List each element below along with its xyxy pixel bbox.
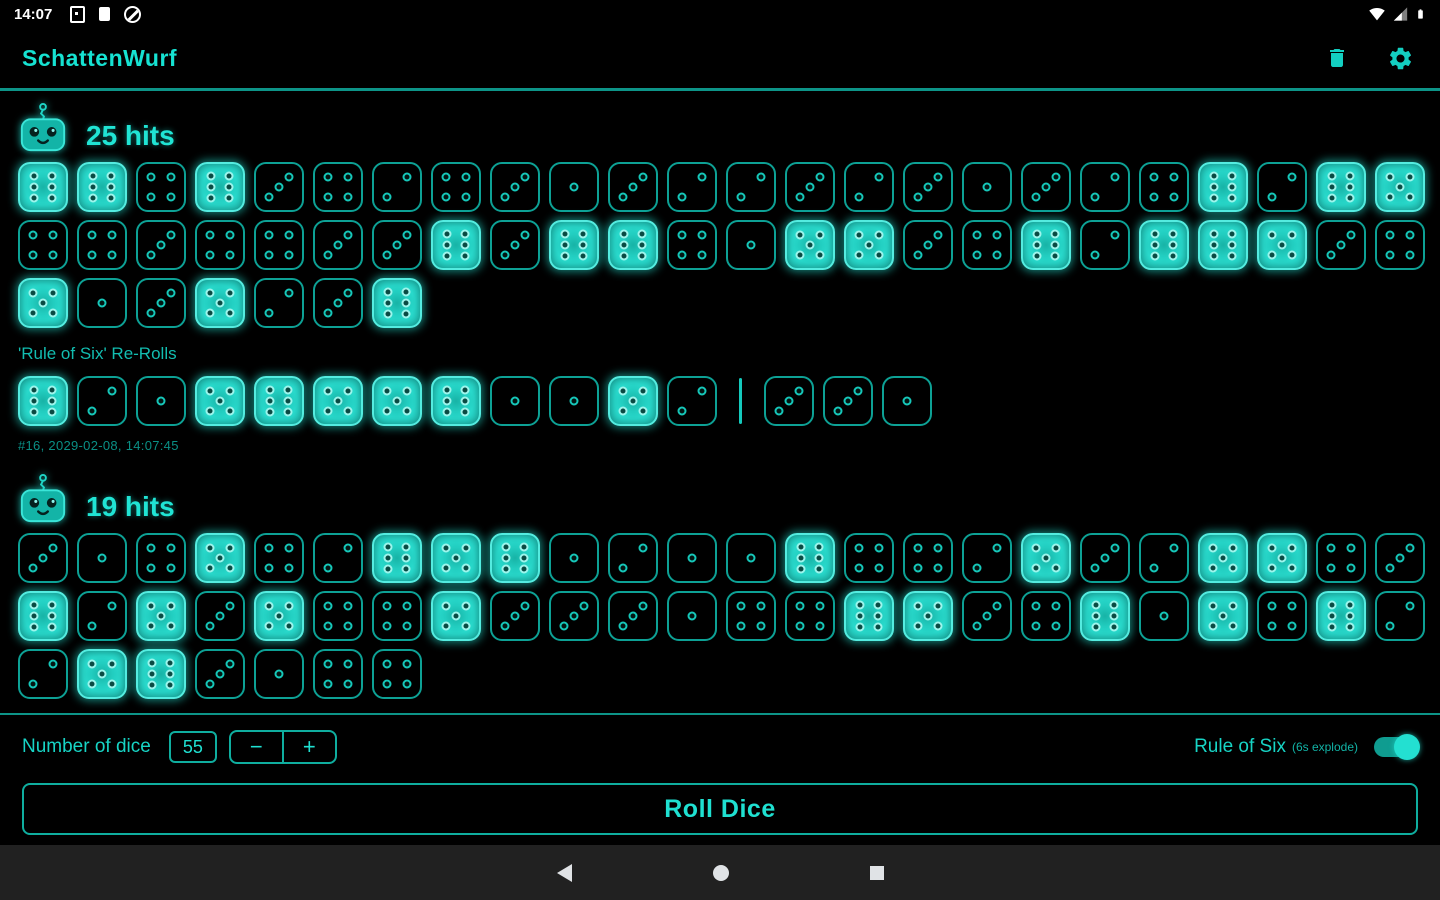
die-5-hit — [1198, 591, 1248, 641]
settings-button[interactable] — [1383, 41, 1418, 76]
pip — [39, 299, 48, 308]
pip — [146, 251, 155, 260]
pip — [403, 622, 412, 631]
die-3 — [195, 591, 245, 641]
pip — [285, 622, 294, 631]
reroll-dice-row — [18, 376, 1440, 426]
pip — [1052, 543, 1061, 552]
pip — [924, 612, 933, 621]
pip — [384, 287, 393, 296]
pip — [1328, 194, 1337, 203]
pip — [106, 194, 115, 203]
die-3 — [490, 591, 540, 641]
pip — [403, 172, 412, 181]
reroll-label: 'Rule of Six' Re-Rolls — [18, 344, 1440, 364]
decrease-dice-button[interactable]: − — [229, 730, 284, 764]
die-6-hit — [136, 649, 186, 699]
pip — [1111, 230, 1120, 239]
pip — [323, 622, 332, 631]
die-4 — [372, 591, 422, 641]
pip — [637, 241, 646, 250]
die-4 — [136, 533, 186, 583]
die-5-hit — [903, 591, 953, 641]
roll-dice-button[interactable]: Roll Dice — [22, 783, 1418, 835]
pip — [511, 612, 520, 621]
delete-button[interactable] — [1321, 41, 1353, 75]
pip — [384, 310, 393, 319]
pip — [441, 564, 450, 573]
pip — [757, 172, 766, 181]
pip — [401, 542, 410, 551]
pip — [167, 288, 176, 297]
pip — [344, 230, 353, 239]
pip — [393, 241, 402, 250]
die-5-hit — [1198, 533, 1248, 583]
pip — [618, 407, 627, 416]
battery-icon — [1415, 5, 1426, 23]
app-bar: SchattenWurf — [0, 28, 1440, 91]
pip — [216, 397, 225, 406]
pip — [559, 622, 568, 631]
pip — [264, 230, 273, 239]
die-3 — [136, 278, 186, 328]
die-3 — [1080, 533, 1130, 583]
die-2 — [1375, 591, 1425, 641]
pip — [403, 659, 412, 668]
pip — [382, 601, 391, 610]
pip — [384, 542, 393, 551]
pip — [1227, 194, 1236, 203]
pip — [1288, 622, 1297, 631]
die-6-hit — [431, 220, 481, 270]
dice-row — [18, 162, 1440, 212]
pip — [814, 565, 823, 574]
cell-signal-icon — [1392, 6, 1409, 22]
pip — [677, 407, 686, 416]
pip — [913, 251, 922, 260]
pip — [207, 183, 216, 192]
pip — [98, 554, 107, 563]
pip — [167, 543, 176, 552]
pip — [1170, 543, 1179, 552]
pip — [1031, 622, 1040, 631]
die-3 — [254, 162, 304, 212]
home-button[interactable] — [705, 857, 737, 889]
clock: 14:07 — [14, 6, 52, 23]
pip — [1385, 622, 1394, 631]
pip — [1033, 252, 1042, 261]
die-3 — [490, 162, 540, 212]
pip — [1406, 601, 1415, 610]
pip — [323, 564, 332, 573]
die-2 — [667, 376, 717, 426]
die-2 — [313, 533, 363, 583]
die-6-hit — [372, 533, 422, 583]
pip — [146, 543, 155, 552]
pip — [1229, 601, 1238, 610]
robot-icon — [18, 473, 68, 525]
pip — [157, 397, 166, 406]
pip — [87, 251, 96, 260]
pip — [275, 612, 284, 621]
pip — [216, 554, 225, 563]
pip — [401, 299, 410, 308]
rolls-list[interactable]: 25 hits'Rule of Six' Re-Rolls#16, 2029-0… — [0, 94, 1440, 713]
die-4 — [844, 533, 894, 583]
pip — [49, 251, 58, 260]
pip — [1168, 241, 1177, 250]
pip — [1168, 229, 1177, 238]
pip — [443, 241, 452, 250]
dice-row — [18, 649, 1440, 699]
pip — [148, 658, 157, 667]
pip — [1227, 183, 1236, 192]
pip — [334, 397, 343, 406]
pip — [1385, 193, 1394, 202]
pip — [283, 385, 292, 394]
rule-of-six-toggle[interactable] — [1374, 737, 1418, 757]
wifi-icon — [1368, 6, 1386, 22]
pip — [795, 230, 804, 239]
pip — [1109, 600, 1118, 609]
pip — [266, 385, 275, 394]
pip — [87, 680, 96, 689]
pip — [1328, 623, 1337, 632]
home-icon — [713, 865, 729, 881]
die-1 — [136, 376, 186, 426]
pip — [344, 601, 353, 610]
pip — [403, 680, 412, 689]
pip — [285, 251, 294, 260]
pip — [854, 193, 863, 202]
pip — [1229, 543, 1238, 552]
pip — [462, 172, 471, 181]
pip — [89, 171, 98, 180]
pip — [502, 565, 511, 574]
pip — [108, 680, 117, 689]
pip — [519, 565, 528, 574]
pip — [698, 172, 707, 181]
pip — [561, 241, 570, 250]
reroll-separator — [739, 378, 742, 424]
pip — [462, 622, 471, 631]
schattenwurf-app: 14:07 SchattenWurf — [0, 0, 1440, 900]
pip — [993, 601, 1002, 610]
pip — [629, 397, 638, 406]
die-5-hit — [195, 376, 245, 426]
pip — [1149, 172, 1158, 181]
pip — [1267, 543, 1276, 552]
pip — [285, 172, 294, 181]
die-3 — [1316, 220, 1366, 270]
pip — [384, 554, 393, 563]
pip — [323, 172, 332, 181]
pip — [511, 241, 520, 250]
pip — [521, 601, 530, 610]
die-3 — [608, 162, 658, 212]
pip — [47, 612, 56, 621]
die-6-hit — [549, 220, 599, 270]
pip — [747, 554, 756, 563]
pip — [205, 680, 214, 689]
bottom-panel: Number of dice − + Rule of Six (6s explo… — [0, 713, 1440, 845]
pip — [146, 193, 155, 202]
pip — [108, 659, 117, 668]
pip — [205, 251, 214, 260]
pip — [205, 386, 214, 395]
pip — [873, 623, 882, 632]
pip — [344, 288, 353, 297]
pip — [393, 397, 402, 406]
pip — [1288, 564, 1297, 573]
die-2 — [726, 162, 776, 212]
pip — [30, 408, 39, 417]
pip — [1326, 251, 1335, 260]
notification-square-icon — [70, 6, 85, 23]
pip — [913, 564, 922, 573]
pip — [264, 564, 273, 573]
pip — [578, 241, 587, 250]
pip — [639, 386, 648, 395]
pip — [873, 600, 882, 609]
pip — [462, 193, 471, 202]
pip — [688, 554, 697, 563]
pip — [1267, 564, 1276, 573]
pip — [167, 193, 176, 202]
die-4 — [431, 162, 481, 212]
pip — [30, 612, 39, 621]
pip — [382, 659, 391, 668]
pip — [511, 183, 520, 192]
pip — [797, 554, 806, 563]
die-4 — [136, 162, 186, 212]
die-2 — [1080, 162, 1130, 212]
pip — [500, 622, 509, 631]
rule-of-six-sublabel: (6s explode) — [1292, 740, 1358, 754]
pip — [1031, 193, 1040, 202]
increase-dice-button[interactable]: + — [282, 730, 337, 764]
pip — [1210, 194, 1219, 203]
dice-row — [18, 220, 1440, 270]
pip — [47, 600, 56, 609]
die-4 — [903, 533, 953, 583]
pip — [283, 408, 292, 417]
pip — [382, 680, 391, 689]
notification-memory-icon — [99, 7, 110, 21]
die-6-hit — [1080, 591, 1130, 641]
die-3 — [136, 220, 186, 270]
pip — [875, 230, 884, 239]
die-5-hit — [18, 278, 68, 328]
pip — [639, 407, 648, 416]
pip — [1406, 251, 1415, 260]
pip — [1052, 564, 1061, 573]
pip — [698, 386, 707, 395]
pip — [934, 601, 943, 610]
pip — [816, 172, 825, 181]
recents-button[interactable] — [862, 858, 892, 888]
pip — [1042, 554, 1051, 563]
pip — [570, 554, 579, 563]
pip — [1347, 543, 1356, 552]
die-6-hit — [18, 376, 68, 426]
pip — [344, 407, 353, 416]
pip — [1042, 183, 1051, 192]
pip — [1210, 183, 1219, 192]
pip — [47, 385, 56, 394]
pip — [814, 554, 823, 563]
pip — [924, 183, 933, 192]
pip — [266, 397, 275, 406]
pip — [30, 397, 39, 406]
pip — [460, 408, 469, 417]
pip — [1031, 601, 1040, 610]
die-5-hit — [1257, 533, 1307, 583]
die-1 — [962, 162, 1012, 212]
pip — [1326, 564, 1335, 573]
pip — [226, 601, 235, 610]
pip — [785, 397, 794, 406]
pip — [1288, 172, 1297, 181]
pip — [216, 670, 225, 679]
pip — [344, 172, 353, 181]
back-button[interactable] — [549, 856, 580, 890]
pip — [795, 193, 804, 202]
pip — [1347, 564, 1356, 573]
pip — [806, 241, 815, 250]
pip — [205, 230, 214, 239]
pip — [1052, 601, 1061, 610]
pip — [47, 397, 56, 406]
pip — [1033, 241, 1042, 250]
pip — [441, 543, 450, 552]
pip — [382, 622, 391, 631]
die-2 — [608, 533, 658, 583]
delete-icon — [1325, 45, 1349, 71]
number-of-dice-input[interactable] — [169, 731, 217, 763]
pip — [570, 612, 579, 621]
pip — [639, 543, 648, 552]
pip — [1229, 564, 1238, 573]
pip — [993, 543, 1002, 552]
pip — [441, 601, 450, 610]
die-2 — [962, 533, 1012, 583]
pip — [1109, 612, 1118, 621]
die-5-hit — [785, 220, 835, 270]
pip — [334, 241, 343, 250]
pip — [1385, 251, 1394, 260]
notification-icons — [70, 6, 141, 23]
pip — [875, 564, 884, 573]
pip — [28, 309, 37, 318]
pip — [500, 251, 509, 260]
pip — [1326, 543, 1335, 552]
pip — [28, 230, 37, 239]
die-2 — [18, 649, 68, 699]
pip — [148, 670, 157, 679]
roll-meta: #16, 2029-02-08, 14:07:45 — [18, 438, 1440, 453]
pip — [401, 554, 410, 563]
pip — [1151, 252, 1160, 261]
pip — [87, 659, 96, 668]
pip — [1151, 229, 1160, 238]
pip — [264, 251, 273, 260]
die-1 — [549, 162, 599, 212]
pip — [983, 183, 992, 192]
pip — [795, 601, 804, 610]
die-4 — [313, 162, 363, 212]
pip — [401, 565, 410, 574]
pip — [854, 251, 863, 260]
die-3 — [313, 220, 363, 270]
pip — [618, 193, 627, 202]
pip — [502, 542, 511, 551]
pip — [226, 407, 235, 416]
pip — [797, 565, 806, 574]
pip — [993, 230, 1002, 239]
die-4 — [77, 220, 127, 270]
die-4 — [313, 591, 363, 641]
pip — [1210, 252, 1219, 261]
pip — [795, 251, 804, 260]
die-3 — [785, 162, 835, 212]
pip — [1267, 622, 1276, 631]
pip — [146, 172, 155, 181]
pip — [443, 229, 452, 238]
die-5-hit — [372, 376, 422, 426]
pip — [323, 251, 332, 260]
pip — [1267, 230, 1276, 239]
dice-count-stepper: − + — [229, 730, 337, 764]
die-6-hit — [1316, 162, 1366, 212]
pip — [382, 251, 391, 260]
die-1 — [549, 533, 599, 583]
pip — [1149, 564, 1158, 573]
pip — [1385, 564, 1394, 573]
pip — [747, 241, 756, 250]
pip — [443, 385, 452, 394]
pip — [1278, 241, 1287, 250]
pip — [146, 309, 155, 318]
pip — [165, 658, 174, 667]
pip — [30, 385, 39, 394]
pip — [1101, 554, 1110, 563]
pip — [275, 670, 284, 679]
pip — [561, 229, 570, 238]
die-5-hit — [1021, 533, 1071, 583]
die-4 — [1139, 162, 1189, 212]
pip — [146, 564, 155, 573]
pip — [264, 601, 273, 610]
pip — [875, 172, 884, 181]
pip — [1090, 564, 1099, 573]
pip — [865, 241, 874, 250]
pip — [1050, 229, 1059, 238]
pip — [677, 230, 686, 239]
pip — [1160, 612, 1169, 621]
pip — [323, 386, 332, 395]
pip — [167, 622, 176, 631]
pip — [993, 251, 1002, 260]
pip — [934, 564, 943, 573]
pip — [854, 230, 863, 239]
die-3 — [962, 591, 1012, 641]
pip — [28, 564, 37, 573]
pip — [28, 680, 37, 689]
die-6-hit — [372, 278, 422, 328]
die-4 — [1021, 591, 1071, 641]
pip — [452, 612, 461, 621]
